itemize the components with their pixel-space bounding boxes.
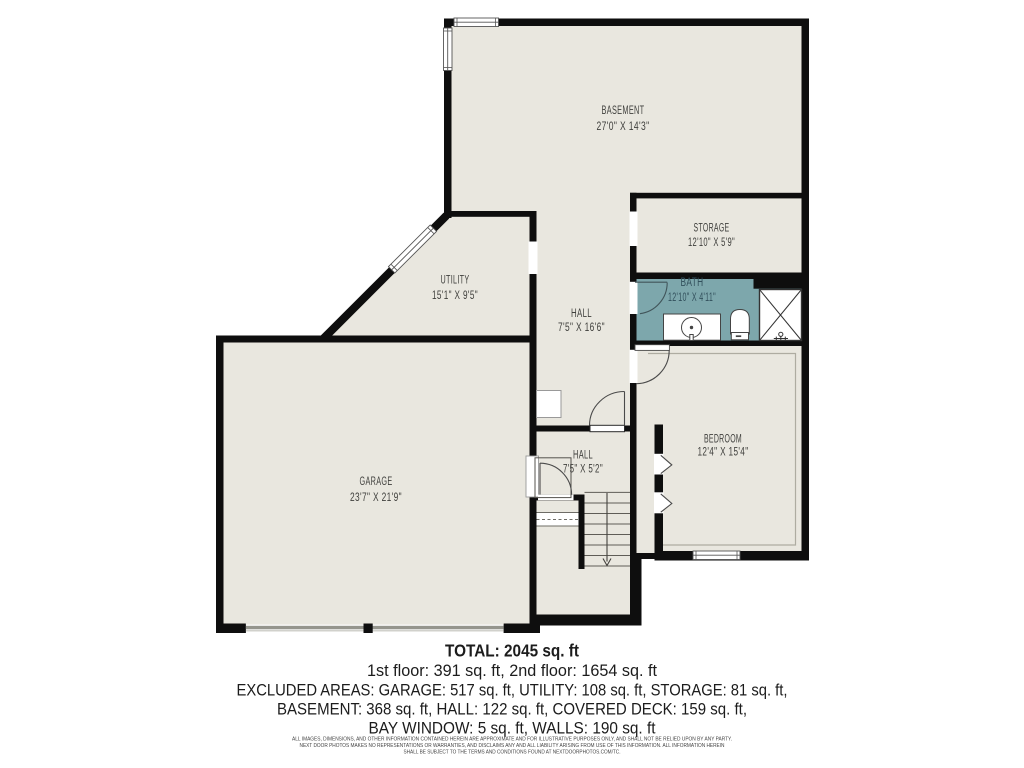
- svg-text:BEDROOM: BEDROOM: [704, 434, 742, 446]
- svg-text:HALL: HALL: [571, 308, 592, 320]
- svg-text:BASEMENT: 368 sq. ft, HALL: 12: BASEMENT: 368 sq. ft, HALL: 122 sq. ft, …: [277, 701, 747, 719]
- svg-text:12'4" X 15'4": 12'4" X 15'4": [698, 447, 749, 459]
- svg-text:27'0" X 14'3": 27'0" X 14'3": [597, 121, 650, 133]
- svg-text:12'10" X 5'9": 12'10" X 5'9": [688, 237, 735, 249]
- svg-text:23'7" X 21'9": 23'7" X 21'9": [350, 492, 402, 504]
- svg-text:TOTAL: 2045 sq. ft: TOTAL: 2045 sq. ft: [445, 641, 579, 661]
- svg-text:1st floor: 391 sq. ft, 2nd flo: 1st floor: 391 sq. ft, 2nd floor: 1654 s…: [367, 662, 657, 680]
- svg-text:STORAGE: STORAGE: [694, 223, 730, 235]
- svg-text:15'1" X 9'5": 15'1" X 9'5": [432, 290, 478, 302]
- svg-text:ALL IMAGES, DIMENSIONS, AND OT: ALL IMAGES, DIMENSIONS, AND OTHER INFORM…: [292, 737, 732, 743]
- svg-text:BAY WINDOW: 5 sq. ft, WALLS: 1: BAY WINDOW: 5 sq. ft, WALLS: 190 sq. ft: [369, 720, 656, 738]
- svg-text:BASEMENT: BASEMENT: [602, 105, 645, 117]
- svg-text:12'10" X 4'11": 12'10" X 4'11": [668, 292, 716, 304]
- svg-text:HALL: HALL: [573, 450, 593, 462]
- svg-text:NEXT DOOR PHOTOS MAKES NO REPR: NEXT DOOR PHOTOS MAKES NO REPRESENTATION…: [300, 743, 725, 749]
- svg-text:7'5" X 16'6": 7'5" X 16'6": [558, 322, 605, 334]
- svg-text:SHALL BE SUBJECT TO THE TERMS: SHALL BE SUBJECT TO THE TERMS AND CONDIT…: [404, 749, 621, 755]
- svg-text:GARAGE: GARAGE: [360, 476, 393, 488]
- svg-text:UTILITY: UTILITY: [441, 275, 470, 287]
- svg-text:7'5" X 5'2": 7'5" X 5'2": [563, 464, 603, 476]
- svg-text:BATH: BATH: [681, 277, 704, 289]
- svg-text:EXCLUDED AREAS: GARAGE: 517 sq: EXCLUDED AREAS: GARAGE: 517 sq. ft, UTIL…: [237, 682, 788, 700]
